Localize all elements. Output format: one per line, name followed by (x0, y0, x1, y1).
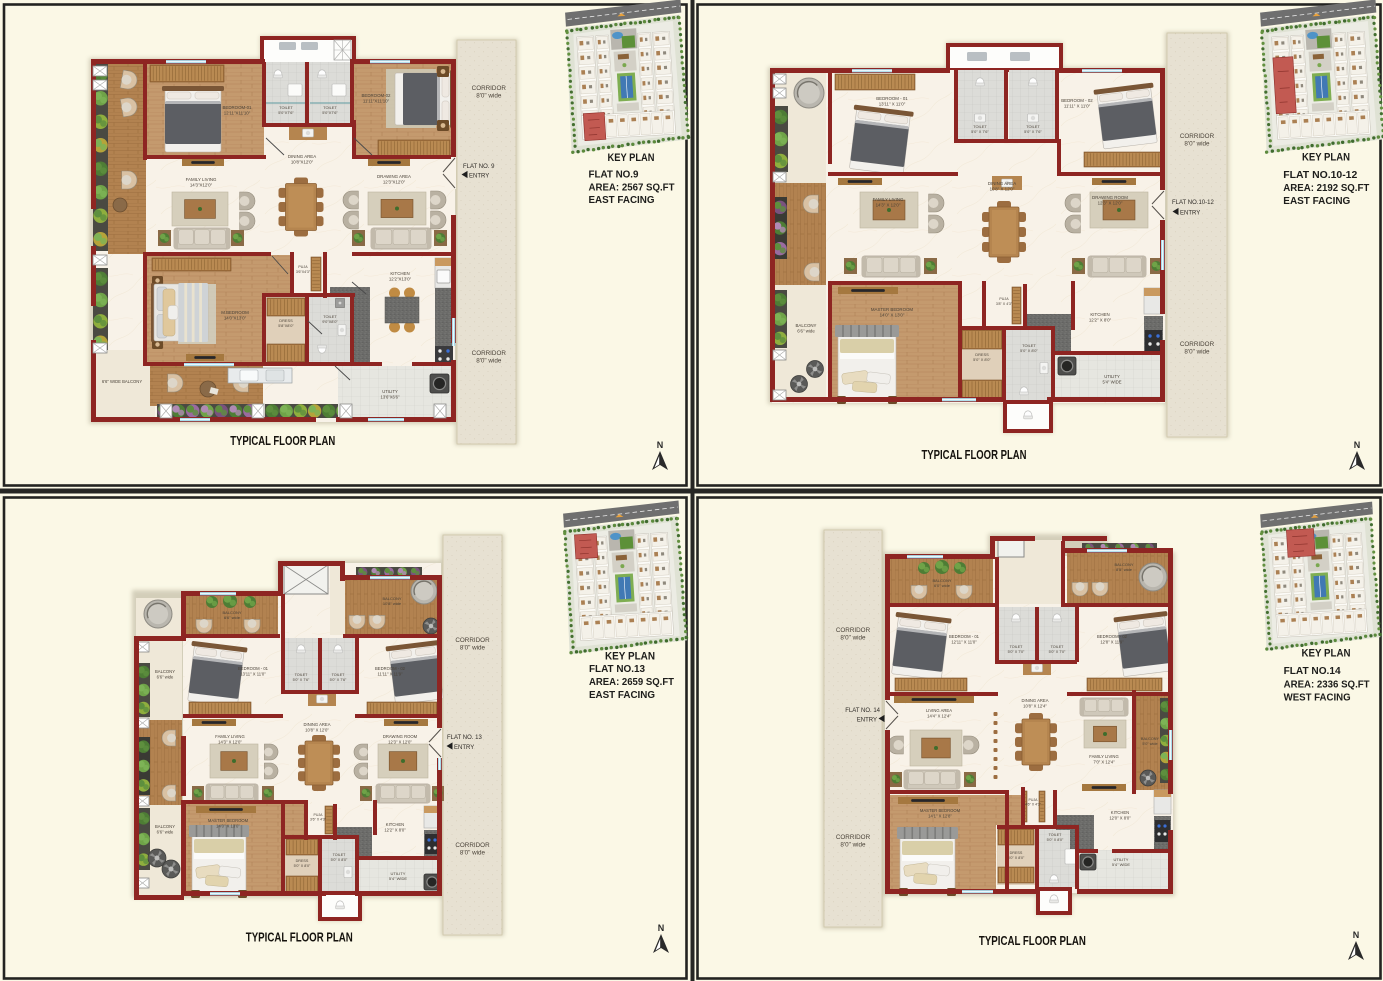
svg-text:ENTRY: ENTRY (857, 718, 877, 724)
svg-text:TOILET5'0" X 7'6": TOILET5'0" X 7'6" (971, 124, 989, 134)
svg-text:DINING AREA10'8"X12'0": DINING AREA10'8"X12'0" (288, 154, 316, 165)
svg-text:KEY PLAN: KEY PLAN (1302, 648, 1351, 660)
svg-text:CORRIDOR8'0" wide: CORRIDOR8'0" wide (472, 350, 507, 365)
svg-text:N: N (1353, 930, 1360, 940)
svg-text:TOILET5'0" X 8'0": TOILET5'0" X 8'0" (1020, 343, 1038, 353)
svg-text:KITCHEN12'2"X13'0": KITCHEN12'2"X13'0" (389, 271, 412, 282)
svg-text:LIVING AREA14'4" X 12'4": LIVING AREA14'4" X 12'4" (926, 708, 952, 718)
svg-text:UTILITY5'4" WIDE: UTILITY5'4" WIDE (1102, 374, 1121, 384)
svg-text:EAST FACING: EAST FACING (589, 690, 655, 701)
svg-text:CORRIDOR8'0" wide: CORRIDOR8'0" wide (1180, 341, 1215, 356)
svg-text:FLAT NO.10-12: FLAT NO.10-12 (1172, 200, 1214, 206)
svg-text:CORRIDOR8'0" wide: CORRIDOR8'0" wide (836, 834, 871, 849)
svg-text:AREA: 2336 SQ.FT: AREA: 2336 SQ.FT (1284, 679, 1371, 690)
svg-text:TOILET5'0"X7'6": TOILET5'0"X7'6" (322, 105, 338, 115)
svg-text:TYPICAL FLOOR PLAN: TYPICAL FLOOR PLAN (922, 447, 1027, 462)
svg-text:KEY PLAN: KEY PLAN (605, 651, 655, 663)
svg-text:FLAT NO.14: FLAT NO.14 (1284, 666, 1341, 677)
svg-text:M.BEDROOM14'0"X13'0": M.BEDROOM14'0"X13'0" (221, 310, 249, 321)
svg-text:ENTRY: ENTRY (1180, 211, 1200, 217)
svg-text:CORRIDOR8'0" wide: CORRIDOR8'0" wide (1180, 133, 1215, 148)
svg-text:KITCHEN12'2" X 8'0": KITCHEN12'2" X 8'0" (1089, 312, 1112, 323)
svg-text:KITCHEN12'0" X 8'0": KITCHEN12'0" X 8'0" (1109, 810, 1131, 820)
svg-text:DINING AREA10'8" X 12'0": DINING AREA10'8" X 12'0" (988, 181, 1016, 192)
svg-text:ENTRY: ENTRY (469, 173, 489, 179)
svg-text:UTILITY5'4" WIDE: UTILITY5'4" WIDE (1112, 857, 1131, 867)
svg-text:KEY PLAN: KEY PLAN (608, 152, 655, 164)
svg-text:DRESS5'0" X 8'0": DRESS5'0" X 8'0" (973, 352, 991, 362)
svg-text:BEDROOM - 0212'8" X 11'9": BEDROOM - 0212'8" X 11'9" (1097, 634, 1128, 644)
svg-text:FLAT NO.13: FLAT NO.13 (589, 664, 645, 675)
svg-text:UTILITY13'6"X6'6": UTILITY13'6"X6'6" (380, 389, 400, 399)
svg-text:CORRIDOR8'0" wide: CORRIDOR8'0" wide (836, 627, 871, 642)
svg-text:FAMILY LIVING14'3" X 12'0": FAMILY LIVING14'3" X 12'0" (873, 197, 904, 208)
svg-text:TOILET5'0"X7'6": TOILET5'0"X7'6" (278, 105, 294, 115)
svg-text:N: N (658, 923, 665, 933)
svg-text:TYPICAL FLOOR PLAN: TYPICAL FLOOR PLAN (230, 433, 335, 448)
svg-text:CORRIDOR8'0" wide: CORRIDOR8'0" wide (455, 842, 490, 857)
svg-text:BEDROOM - 0211'11" X 11'9": BEDROOM - 0211'11" X 11'9" (375, 666, 406, 676)
svg-text:FLAT NO. 9: FLAT NO. 9 (463, 164, 495, 170)
svg-text:BALCONY6'6" wide: BALCONY6'6" wide (155, 669, 175, 679)
svg-text:KEY PLAN: KEY PLAN (1302, 152, 1350, 164)
svg-text:BALCONY6'0" wide: BALCONY6'0" wide (932, 578, 951, 588)
svg-text:FAMILY LIVING7'0" X 12'4": FAMILY LIVING7'0" X 12'4" (1089, 754, 1118, 764)
svg-text:BEDROOM-0211'11"X11'10": BEDROOM-0211'11"X11'10" (361, 93, 391, 104)
svg-text:DINING AREA10'8" X 12'0": DINING AREA10'8" X 12'0" (304, 722, 331, 732)
svg-text:BEDROOM - 0113'11" X 11'0": BEDROOM - 0113'11" X 11'0" (876, 96, 908, 107)
svg-text:CORRIDOR8'0" wide: CORRIDOR8'0" wide (455, 637, 490, 652)
svg-text:TYPICAL FLOOR PLAN: TYPICAL FLOOR PLAN (979, 933, 1086, 948)
svg-text:TYPICAL FLOOR PLAN: TYPICAL FLOOR PLAN (246, 930, 353, 945)
svg-text:BALCONY6'6" wide: BALCONY6'6" wide (796, 323, 817, 334)
svg-text:BALCONY10'8" wide: BALCONY10'8" wide (382, 596, 401, 606)
svg-text:BEDROOM - 0112'11" X 11'0": BEDROOM - 0112'11" X 11'0" (949, 634, 980, 644)
svg-text:BALCONY8'5" wide: BALCONY8'5" wide (1114, 562, 1133, 572)
svg-text:BALCONY6'6" wide: BALCONY6'6" wide (222, 610, 241, 620)
svg-text:WEST FACING: WEST FACING (1284, 692, 1351, 703)
svg-text:N: N (1354, 440, 1361, 450)
svg-text:FLAT NO.10-12: FLAT NO.10-12 (1283, 170, 1357, 181)
svg-text:ENTRY: ENTRY (454, 745, 474, 751)
svg-text:CORRIDOR8'0" wide: CORRIDOR8'0" wide (472, 85, 507, 100)
svg-text:BEDROOM - 0113'11" X 11'0": BEDROOM - 0113'11" X 11'0" (238, 666, 269, 676)
svg-text:DINING AREA10'8" X 12'4": DINING AREA10'8" X 12'4" (1022, 698, 1049, 708)
svg-text:6'6" WIDE BALCONY: 6'6" WIDE BALCONY (102, 379, 142, 384)
svg-text:AREA: 2659 SQ.FT: AREA: 2659 SQ.FT (589, 677, 675, 688)
svg-text:KITCHEN12'2" X 8'0": KITCHEN12'2" X 8'0" (384, 822, 406, 832)
svg-text:TOILET9'0"X8'0": TOILET9'0"X8'0" (322, 314, 338, 324)
svg-text:N: N (657, 440, 664, 450)
svg-text:AREA: 2567 SQ.FT: AREA: 2567 SQ.FT (589, 183, 676, 194)
svg-text:FLAT NO. 14: FLAT NO. 14 (845, 708, 880, 714)
svg-text:BEDROOM-0112'11"X11'10": BEDROOM-0112'11"X11'10" (222, 105, 252, 116)
svg-text:BALCONY5'0" wide: BALCONY5'0" wide (1141, 737, 1160, 746)
svg-text:TOILET5'0" X 7'6": TOILET5'0" X 7'6" (1024, 124, 1042, 134)
svg-text:BALCONY6'6" wide: BALCONY6'6" wide (155, 824, 175, 834)
svg-text:DRESS5'8"X8'0": DRESS5'8"X8'0" (278, 318, 294, 328)
svg-text:EAST FACING: EAST FACING (589, 195, 655, 206)
svg-text:BEDROOM - 0211'11" X 11'0": BEDROOM - 0211'11" X 11'0" (1061, 98, 1093, 109)
svg-text:AREA: 2192 SQ.FT: AREA: 2192 SQ.FT (1283, 183, 1370, 194)
svg-text:UTILITY5'4" WIDE: UTILITY5'4" WIDE (389, 871, 408, 881)
svg-text:FLAT NO.9: FLAT NO.9 (589, 170, 639, 181)
svg-text:FAMILY LIVING14'3" X 12'0": FAMILY LIVING14'3" X 12'0" (215, 734, 244, 744)
svg-text:FLAT NO. 13: FLAT NO. 13 (447, 735, 482, 741)
svg-text:EAST FACING: EAST FACING (1283, 196, 1350, 207)
